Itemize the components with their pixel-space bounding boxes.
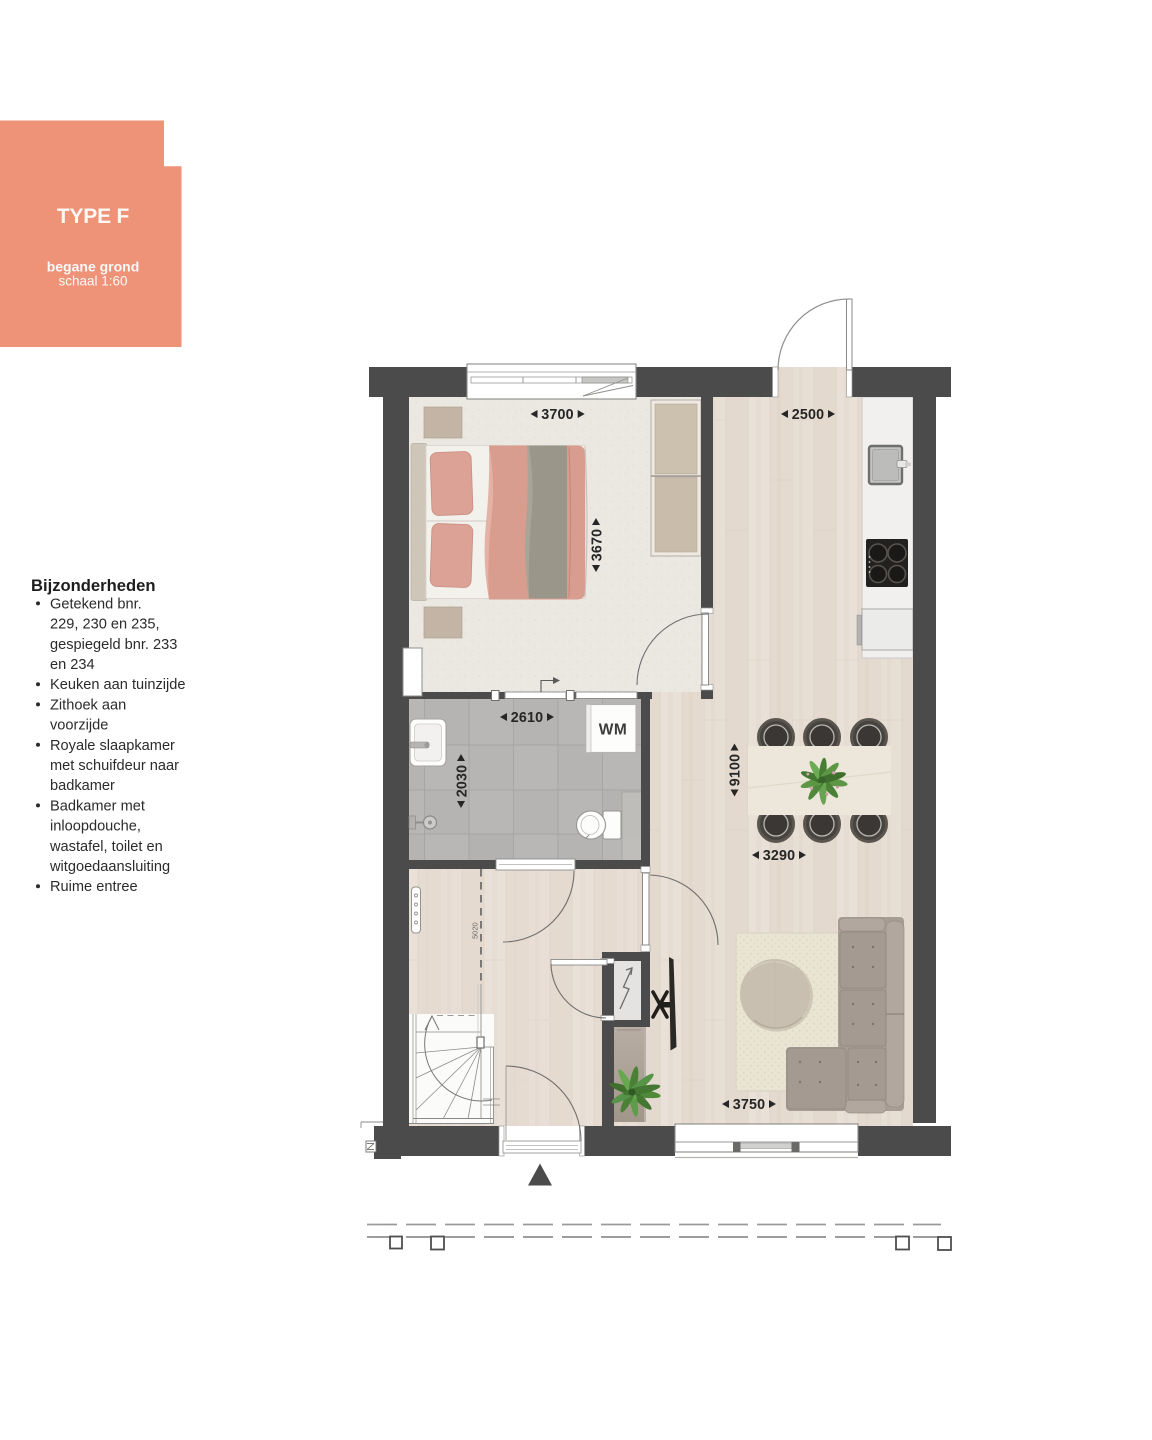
svg-text:en 234: en 234 bbox=[50, 657, 95, 673]
svg-text:3290: 3290 bbox=[763, 848, 796, 864]
svg-text:Getekend bnr.: Getekend bnr. bbox=[50, 596, 142, 612]
svg-text:voorzijde: voorzijde bbox=[50, 718, 108, 734]
svg-text:Royale slaapkamer: Royale slaapkamer bbox=[50, 738, 175, 754]
svg-text:2500: 2500 bbox=[792, 407, 825, 423]
svg-text:9100: 9100 bbox=[728, 754, 744, 787]
svg-text:begane grond: begane grond bbox=[47, 259, 140, 275]
svg-text:badkamer: badkamer bbox=[50, 778, 115, 794]
svg-text:gespiegeld bnr. 233: gespiegeld bnr. 233 bbox=[50, 637, 177, 653]
svg-text:229, 230 en 235,: 229, 230 en 235, bbox=[50, 617, 160, 633]
svg-text:3750: 3750 bbox=[733, 1097, 766, 1113]
svg-text:Keuken aan tuinzijde: Keuken aan tuinzijde bbox=[50, 677, 186, 693]
svg-text:Zithoek aan: Zithoek aan bbox=[50, 697, 126, 713]
svg-text:WM: WM bbox=[599, 722, 628, 739]
svg-text:2610: 2610 bbox=[511, 710, 544, 726]
svg-text:met schuifdeur naar: met schuifdeur naar bbox=[50, 758, 179, 774]
svg-text:inloopdouche,: inloopdouche, bbox=[50, 819, 141, 835]
svg-text:witgoedaansluiting: witgoedaansluiting bbox=[49, 859, 170, 875]
svg-text:Bijzonderheden: Bijzonderheden bbox=[31, 576, 155, 595]
svg-text:wastafel, toilet en: wastafel, toilet en bbox=[49, 839, 163, 855]
svg-text:3700: 3700 bbox=[541, 407, 574, 423]
svg-text:5020: 5020 bbox=[471, 922, 480, 939]
svg-text:3670: 3670 bbox=[589, 529, 605, 562]
svg-text:TYPE F: TYPE F bbox=[57, 205, 130, 228]
svg-text:schaal 1:60: schaal 1:60 bbox=[58, 274, 127, 289]
svg-text:Ruime entree: Ruime entree bbox=[50, 879, 138, 895]
svg-text:2030: 2030 bbox=[454, 765, 470, 798]
svg-text:Badkamer met: Badkamer met bbox=[50, 798, 145, 814]
